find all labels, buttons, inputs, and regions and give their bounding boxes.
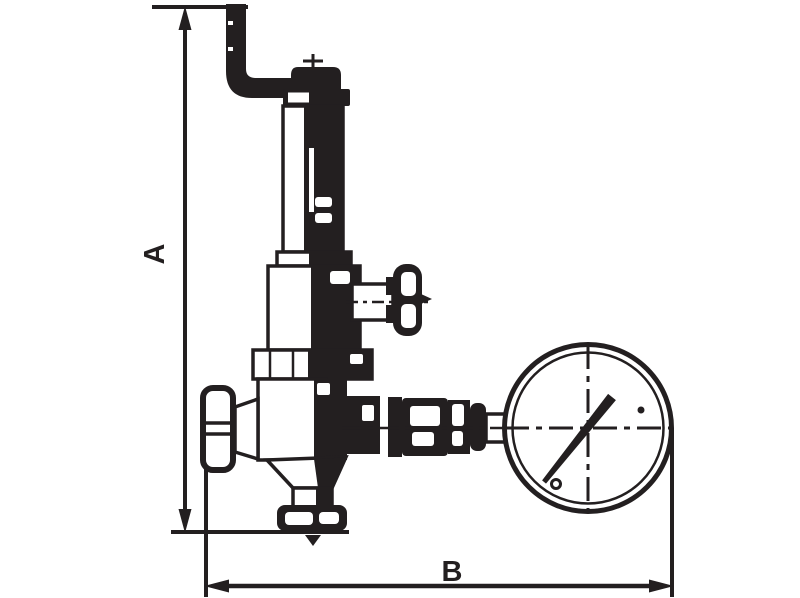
adjusting-screw: [283, 54, 350, 106]
gauge-piping: [340, 396, 510, 457]
bonnet-highlight: [330, 271, 350, 284]
hex-nipple-highlight: [452, 404, 464, 426]
hex-flange: [253, 350, 372, 379]
inlet-pipe: [226, 4, 293, 98]
pipe-highlight-tick: [228, 47, 233, 51]
outlet-neck-shading: [316, 488, 332, 507]
top-flange-highlight: [288, 93, 309, 103]
spring-coil-highlight: [315, 213, 332, 223]
handwheel-bar: [203, 388, 233, 470]
body-side-fitting: [340, 396, 380, 454]
handwheel: [203, 388, 258, 470]
pipe-elbow: [226, 4, 293, 98]
spring-housing: [277, 106, 351, 266]
valve-body-highlight: [317, 383, 330, 395]
union-nut-highlight: [412, 432, 434, 446]
valve-body: [258, 379, 347, 460]
dim-a-arrow-up-icon: [179, 6, 192, 30]
union-nut-highlight: [410, 406, 440, 426]
screw-cap: [291, 67, 341, 90]
flow-direction-arrow-icon: [305, 535, 321, 546]
dim-a-arrow-down-icon: [179, 509, 192, 533]
outlet-nut-highlight: [319, 512, 339, 524]
dimension-a-label: A: [139, 243, 171, 264]
handwheel-cone: [235, 399, 258, 459]
pressure-gauge: [505, 345, 672, 512]
dimension-b-label: B: [442, 556, 463, 588]
outlet-nut-highlight: [285, 512, 313, 525]
hex-nipple-highlight: [452, 431, 463, 446]
hex-flange-highlight: [350, 354, 363, 364]
housing-bottom-flange-shading: [309, 252, 351, 266]
t-handle-highlight: [401, 304, 416, 328]
drawing-canvas: A B: [0, 0, 800, 598]
hex-flange-shading: [308, 350, 372, 379]
spring-housing-highlight: [309, 148, 314, 212]
gauge-dial-dot: [638, 407, 645, 414]
bonnet: [268, 266, 360, 350]
t-handle-highlight: [401, 272, 416, 296]
needle-counterweight: [552, 480, 561, 489]
valve-technical-drawing: A B: [0, 0, 800, 598]
pipe-highlight-tick: [228, 21, 233, 25]
fitting-highlight: [362, 405, 374, 421]
spring-coil-highlight: [315, 197, 332, 207]
